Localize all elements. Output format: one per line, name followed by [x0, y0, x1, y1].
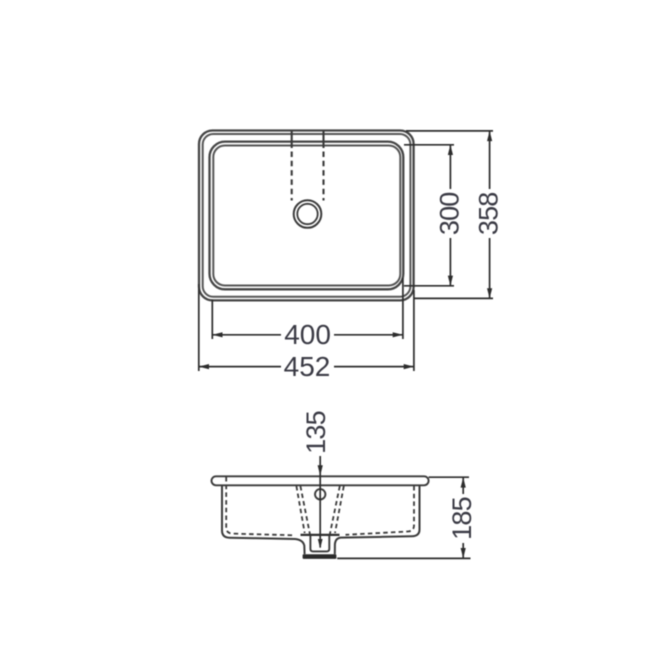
- svg-text:452: 452: [284, 351, 331, 382]
- svg-text:300: 300: [434, 192, 464, 235]
- svg-text:358: 358: [474, 192, 504, 235]
- svg-text:185: 185: [447, 497, 477, 540]
- svg-text:400: 400: [284, 319, 331, 350]
- svg-text:135: 135: [301, 411, 331, 454]
